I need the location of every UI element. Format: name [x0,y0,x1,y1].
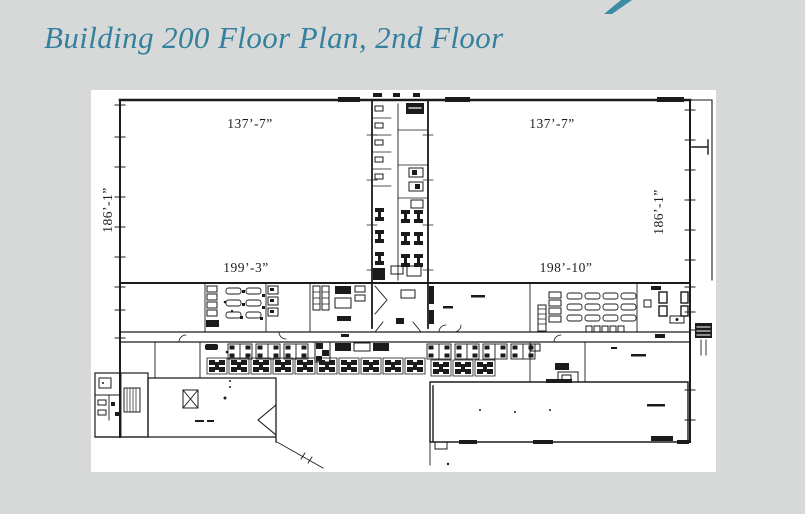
stair-block [95,373,148,437]
diagonal-passage [277,442,323,468]
floor-plan-drawing: 137’-7” 137’-7” 186’-1” 186’-1” 199’-3” … [91,90,716,472]
office-band-upper [205,283,688,332]
outer-walls [115,97,712,442]
page-title: Building 200 Floor Plan, 2nd Floor [44,21,504,55]
right-grille [690,323,712,355]
dimension-label-bottom-right-span: 198’-10” [540,260,593,275]
central-core [367,93,433,332]
floor-plan-image: 137’-7” 137’-7” 186’-1” 186’-1” 199’-3” … [91,90,716,472]
wall-notch [258,405,276,435]
slide: Building 200 Floor Plan, 2nd Floor [0,0,805,514]
cubicle-band [155,342,646,382]
corridor [120,332,690,342]
bottom-left-rooms [95,378,276,442]
dimension-label-bottom-left-span: 199’-3” [223,260,268,275]
dimension-label-left-side: 186’-1” [100,187,115,232]
swoosh-shape [604,0,632,14]
bottom-right-room [430,379,690,465]
dimension-label-top-right: 137’-7” [529,116,574,131]
dimension-label-right-side: 186’-1” [651,189,666,234]
dimension-label-top-left: 137’-7” [227,116,272,131]
swoosh-decoration-icon [595,0,640,16]
